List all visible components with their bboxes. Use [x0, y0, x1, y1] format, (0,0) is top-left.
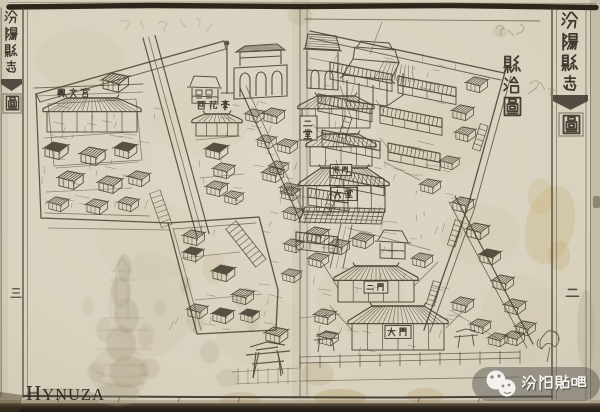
- svg-text:HYNUZA: HYNUZA: [26, 381, 105, 405]
